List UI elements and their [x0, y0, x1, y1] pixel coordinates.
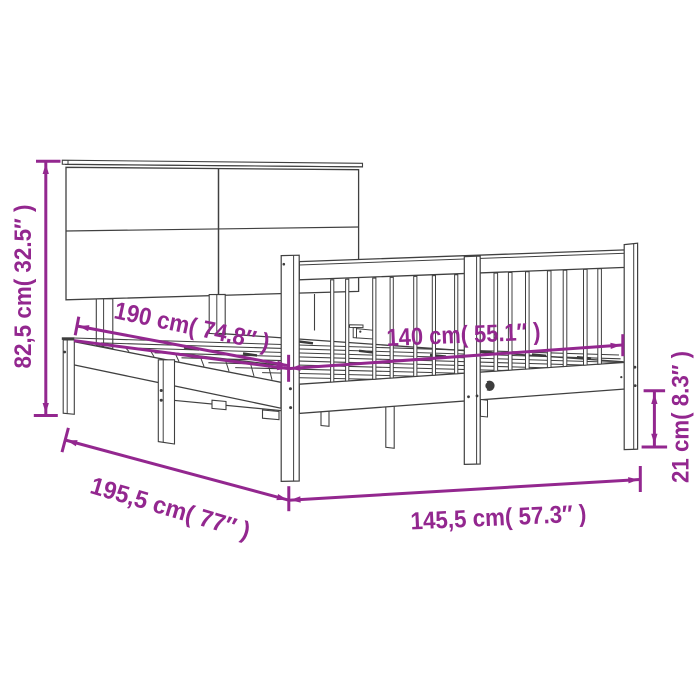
svg-text:21 cm( 8.3″ ): 21 cm( 8.3″ ) — [668, 351, 695, 483]
svg-text:140 cm( 55.1″ ): 140 cm( 55.1″ ) — [386, 319, 541, 352]
svg-text:82,5 cm( 32.5″ ): 82,5 cm( 32.5″ ) — [10, 205, 37, 369]
svg-text:145,5 cm( 57.3″ ): 145,5 cm( 57.3″ ) — [410, 501, 587, 536]
